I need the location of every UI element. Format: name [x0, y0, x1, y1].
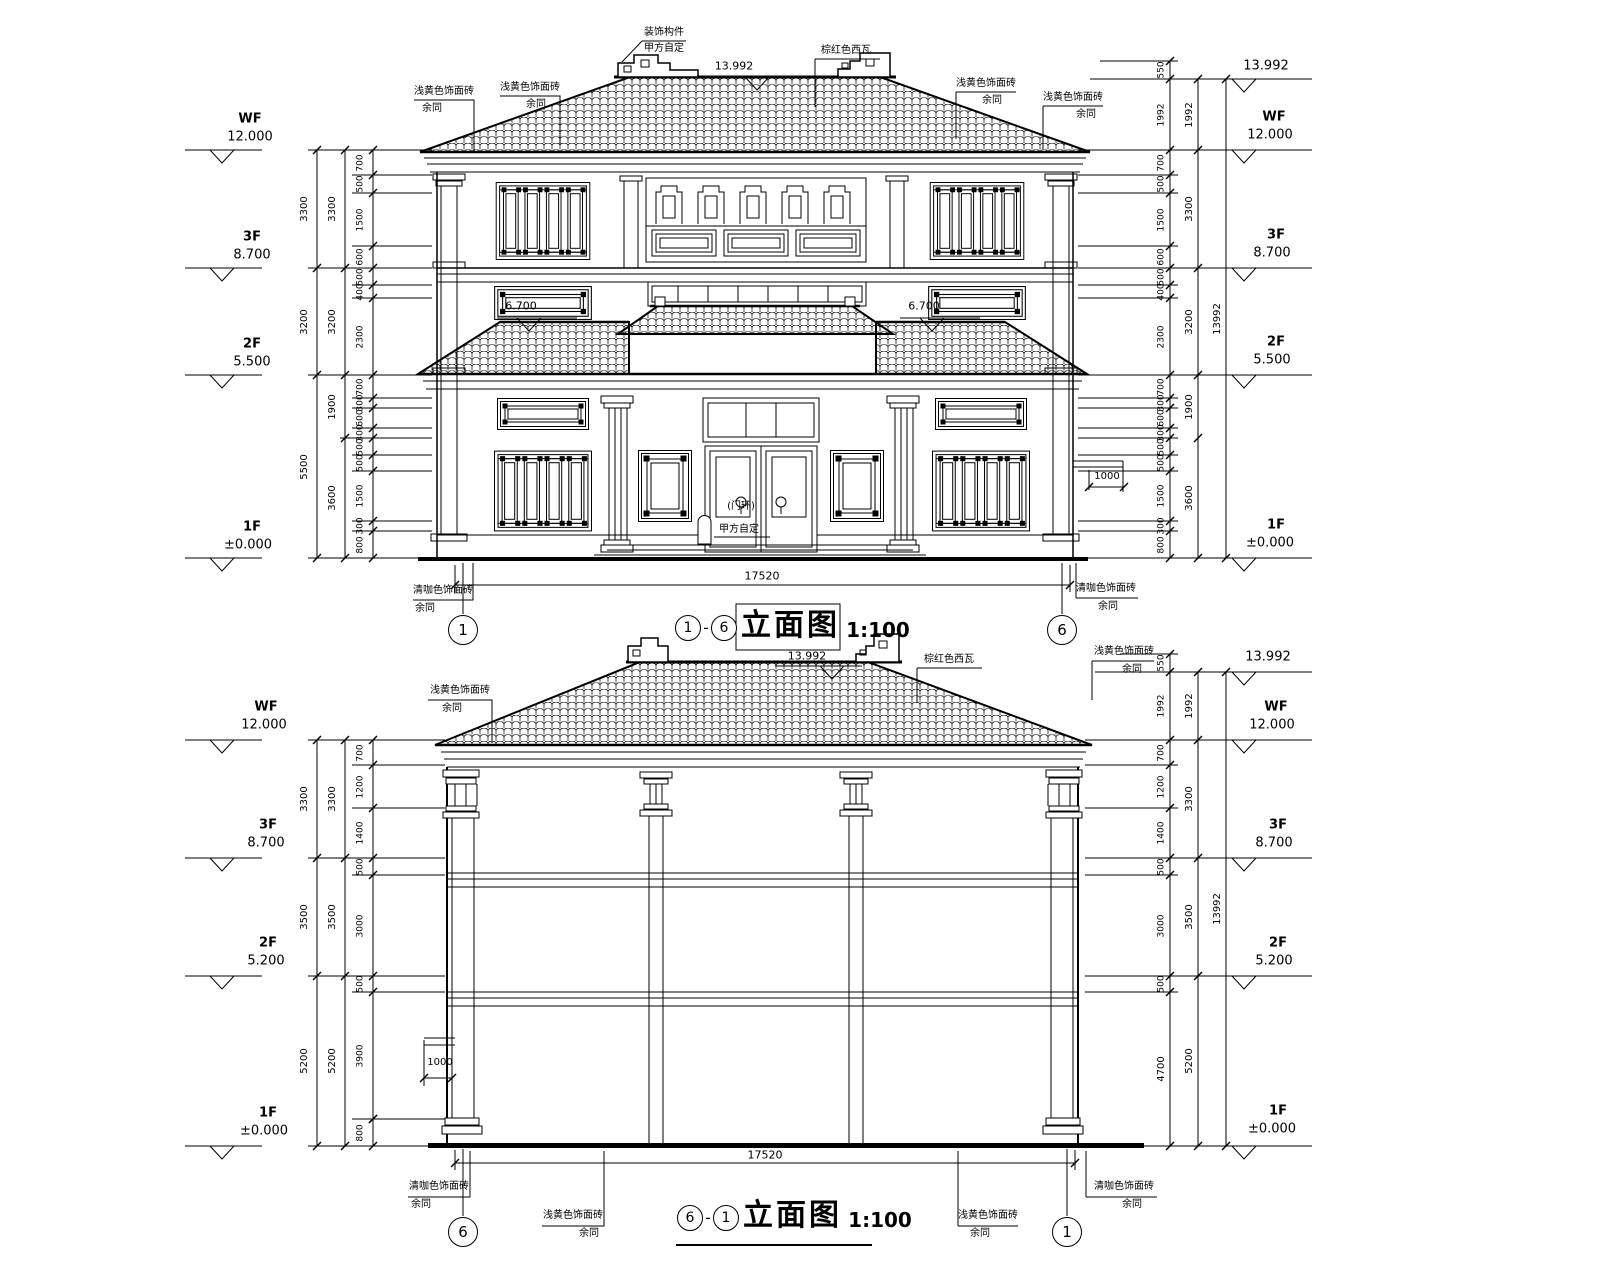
level-tag: WF	[238, 113, 261, 126]
level-value: 5.500	[1253, 354, 1290, 367]
dim-label: 1992	[1158, 104, 1167, 127]
level-value: 13.992	[1243, 60, 1289, 73]
level-value: 12.000	[1249, 719, 1295, 732]
dim-label: 5200	[300, 1048, 310, 1073]
dim-label: 300	[1158, 517, 1167, 534]
overall-width-v1: 17520	[745, 571, 780, 582]
axis-number: 1	[722, 1210, 731, 1226]
note-rest-same: 余同	[1122, 1200, 1142, 1210]
note-brick-yellow: 浅黄色饰面砖	[543, 1211, 603, 1221]
dim-label: 1200	[1158, 776, 1167, 799]
level-tag: 3F	[1269, 819, 1287, 832]
dim-label: 1400	[357, 822, 366, 845]
dim-label: 3200	[300, 309, 310, 334]
axis-number: 6	[686, 1210, 695, 1226]
level-tag: WF	[1262, 111, 1285, 124]
dim-label: 2300	[357, 326, 366, 349]
dim-label: 700	[357, 154, 366, 171]
level-value: ±0.000	[1246, 537, 1294, 550]
ridge-elevation-v1: 13.992	[715, 61, 754, 72]
dim-label: 700	[357, 744, 366, 761]
note-brick-yellow: 浅黄色饰面砖	[430, 686, 490, 696]
main-roof	[420, 53, 1090, 172]
axis-bubble-6b: 6	[448, 1217, 478, 1247]
elevation-view-2	[408, 634, 1157, 1245]
note-rest-same: 余同	[411, 1200, 431, 1210]
level-tag: 2F	[1269, 937, 1287, 950]
dim-label: 700	[1158, 154, 1167, 171]
dim-label: 500	[1158, 858, 1167, 875]
axis-number: 6	[1057, 621, 1067, 639]
dim-label: 5200	[1185, 1048, 1195, 1073]
dim-label: 400	[357, 283, 366, 300]
dim-label: 1500	[357, 209, 366, 232]
porch-elevation-right: 6.700	[908, 301, 940, 312]
dim-label: 3000	[1158, 915, 1167, 938]
view-title-v2: 立面图	[743, 1201, 842, 1231]
level-tag: 2F	[1267, 336, 1285, 349]
drawing-sheet: 装饰构件 甲方自定 13.992 棕红色西瓦 浅黄色饰面砖 余同 浅黄色饰面砖 …	[0, 0, 1600, 1280]
note-rest-same: 余同	[415, 604, 435, 614]
dim-label: 3300	[328, 786, 338, 811]
axis-bubble-6: 6	[1047, 615, 1077, 645]
note-roof-tile-v2: 棕红色西瓦	[924, 655, 974, 665]
dim-label: 1500	[1158, 485, 1167, 508]
level-value: 8.700	[233, 249, 270, 262]
dim-label: 1992	[1185, 102, 1195, 127]
note-deco-2: 甲方自定	[644, 44, 684, 54]
dim-label: 13992	[1213, 303, 1223, 335]
dim-label: 5200	[328, 1048, 338, 1073]
porch-elevation-left: 6.700	[505, 301, 537, 312]
dim-label: 500	[1158, 975, 1167, 992]
axis-number: 6	[458, 1223, 468, 1241]
dim-label: 1900	[1185, 394, 1195, 419]
title-bubble-left-v2: 6	[677, 1205, 703, 1231]
dim-label: 3600	[1185, 485, 1195, 510]
elevation-view-1	[413, 41, 1138, 650]
dim-label: 1200	[357, 776, 366, 799]
ridge-parapet-right	[838, 53, 890, 77]
scale-label-v1: 1:100	[846, 620, 910, 640]
note-rest-same: 余同	[442, 704, 462, 714]
level-tag: 3F	[243, 231, 261, 244]
dim-label: 700	[357, 378, 366, 395]
note-door-2: 甲方自定	[719, 525, 759, 535]
dim-label: 500	[1158, 438, 1167, 455]
door-bell	[698, 516, 711, 545]
canopy-dim-v1: 1000	[1094, 472, 1119, 482]
dim-label: 500	[357, 454, 366, 471]
note-brick-yellow: 浅黄色饰面砖	[414, 87, 474, 97]
dim-label: 600	[357, 248, 366, 265]
dim-label: 3600	[328, 485, 338, 510]
level-tag: 1F	[1267, 519, 1285, 532]
main-roof-2	[435, 634, 1092, 767]
title-separator: -	[703, 621, 708, 636]
note-rest-same: 余同	[982, 96, 1002, 106]
first-floor	[495, 396, 1030, 555]
level-value: ±0.000	[224, 539, 272, 552]
title-bubble-left-v1: 1	[675, 615, 701, 641]
dim-label: 500	[1158, 454, 1167, 471]
level-value: 5.200	[1255, 955, 1292, 968]
note-brick-dark: 清咖色饰面砖	[1094, 1182, 1154, 1192]
axis-number: 6	[720, 620, 729, 636]
level-value: 5.500	[233, 356, 270, 369]
level-value: ±0.000	[1248, 1123, 1296, 1136]
note-brick-yellow: 浅黄色饰面砖	[500, 83, 560, 93]
note-brick-dark: 清咖色饰面砖	[1076, 584, 1136, 594]
note-door-1: (门环)	[727, 502, 755, 512]
level-tag: 2F	[243, 338, 261, 351]
title-bubble-right-v1: 6	[711, 615, 737, 641]
level-value: 13.992	[1245, 651, 1291, 664]
dim-label: 1500	[1158, 209, 1167, 232]
walls-2	[447, 767, 1078, 1143]
note-rest-same: 余同	[422, 104, 442, 114]
note-brick-yellow: 浅黄色饰面砖	[1094, 647, 1154, 657]
title-bubble-right-v2: 1	[713, 1205, 739, 1231]
axis-number: 1	[684, 620, 693, 636]
dim-label: 300	[357, 517, 366, 534]
dim-label: 700	[1158, 744, 1167, 761]
level-value: 8.700	[247, 837, 284, 850]
dim-label: 700	[1158, 378, 1167, 395]
dim-label: 400	[1158, 283, 1167, 300]
note-brick-dark: 清咖色饰面砖	[409, 1182, 469, 1192]
axis-bubble-1b: 1	[1052, 1217, 1082, 1247]
dim-label: 3500	[300, 904, 310, 929]
dim-label: 500	[357, 438, 366, 455]
level-value: 12.000	[1247, 129, 1293, 142]
dim-label: 500	[1158, 175, 1167, 192]
scale-label-v2: 1:100	[848, 1210, 912, 1230]
dim-label: 1992	[1185, 693, 1195, 718]
dim-label: 1400	[1158, 822, 1167, 845]
level-tag: 1F	[243, 521, 261, 534]
dim-label: 2300	[1158, 326, 1167, 349]
dim-label: 4700	[1157, 1056, 1167, 1081]
dim-label: 550	[1158, 61, 1167, 78]
dim-label: 500	[357, 175, 366, 192]
dim-label: 3500	[1185, 904, 1195, 929]
dim-label: 550	[1158, 654, 1167, 671]
dim-label: 3500	[328, 904, 338, 929]
dim-label: 13992	[1213, 893, 1223, 925]
note-rest-same: 余同	[970, 1229, 990, 1239]
level-value: 8.700	[1253, 247, 1290, 260]
dim-label: 3300	[300, 196, 310, 221]
dim-label: 3300	[1185, 786, 1195, 811]
level-value: ±0.000	[240, 1125, 288, 1138]
note-rest-same: 余同	[1098, 602, 1118, 612]
level-value: 5.200	[247, 955, 284, 968]
dim-label: 1900	[328, 394, 338, 419]
note-brick-yellow: 浅黄色饰面砖	[956, 79, 1016, 89]
dim-label: 500	[357, 975, 366, 992]
level-tag: 3F	[1267, 229, 1285, 242]
dim-label: 3200	[1185, 309, 1195, 334]
window-3f-center	[646, 178, 866, 262]
dim-label: 800	[1158, 536, 1167, 553]
dim-label: 800	[357, 536, 366, 553]
note-brick-dark: 清咖色饰面砖	[413, 586, 473, 596]
level-value: 12.000	[241, 719, 287, 732]
axis-bubble-1: 1	[448, 615, 478, 645]
columns-2	[442, 770, 1083, 1143]
axis-number: 1	[1062, 1223, 1072, 1241]
level-tag: 1F	[1269, 1105, 1287, 1118]
level-tag: WF	[1264, 701, 1287, 714]
note-rest-same: 余同	[1076, 110, 1096, 120]
dim-label: 800	[357, 1124, 366, 1141]
dim-label: 3900	[357, 1045, 366, 1068]
ground-line-2	[428, 1143, 1144, 1148]
dim-label: 1992	[1158, 695, 1167, 718]
note-deco-1: 装饰构件	[644, 28, 684, 38]
note-brick-yellow: 浅黄色饰面砖	[958, 1211, 1018, 1221]
dim-label: 500	[357, 858, 366, 875]
title-separator: -	[705, 1211, 710, 1226]
level-tag: 2F	[259, 937, 277, 950]
dim-label: 5500	[300, 454, 310, 479]
dim-label: 1500	[357, 485, 366, 508]
view-title-v1: 立面图	[741, 611, 840, 641]
note-rest-same: 余同	[579, 1229, 599, 1239]
windows-3f	[496, 176, 1024, 268]
note-roof-tile-v1: 棕红色西瓦	[821, 46, 871, 56]
dim-label: 3200	[328, 309, 338, 334]
axis-number: 1	[458, 621, 468, 639]
dim-label: 3000	[357, 915, 366, 938]
overall-width-v2: 17520	[748, 1150, 783, 1161]
canopy-dim-v2: 1000	[427, 1058, 452, 1068]
level-tag: WF	[254, 701, 277, 714]
level-value: 8.700	[1255, 837, 1292, 850]
level-tag: 1F	[259, 1107, 277, 1120]
ground-line	[418, 557, 1088, 561]
dim-label: 600	[1158, 248, 1167, 265]
note-brick-yellow: 浅黄色饰面砖	[1043, 93, 1103, 103]
note-rest-same: 余同	[526, 100, 546, 110]
ridge-elevation-v2: 13.992	[788, 651, 827, 662]
dim-label: 3300	[1185, 196, 1195, 221]
note-rest-same: 余同	[1122, 665, 1142, 675]
dim-label: 3300	[328, 196, 338, 221]
level-value: 12.000	[227, 131, 273, 144]
dim-label: 3300	[300, 786, 310, 811]
level-tag: 3F	[259, 819, 277, 832]
